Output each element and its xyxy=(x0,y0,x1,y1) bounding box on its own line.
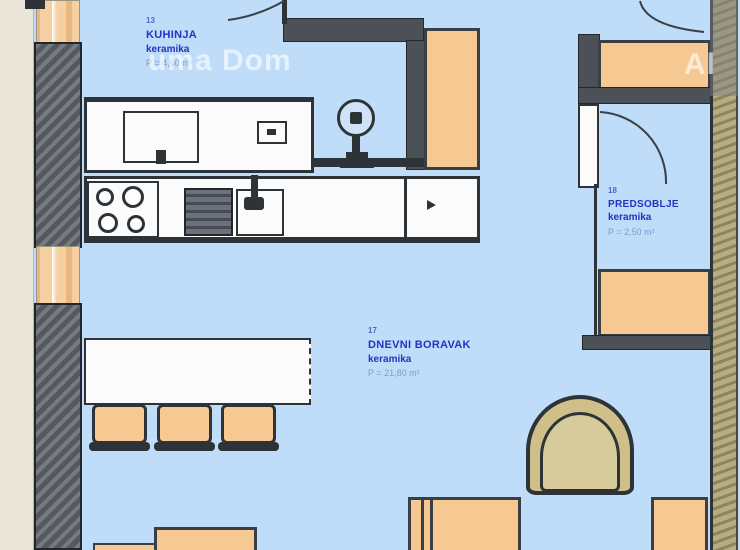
door-arc-entrance xyxy=(228,1,284,20)
watermark-text: uma Dom xyxy=(148,44,292,78)
floor-plan: 13 KUHINJA keramika P = 4,60 m² 17 DNEVN… xyxy=(0,0,740,550)
door-arc-hall-top xyxy=(640,1,704,32)
door-arcs xyxy=(0,0,740,550)
watermark-corner-text: Al xyxy=(684,48,716,82)
door-arc-hall-room xyxy=(600,112,666,184)
